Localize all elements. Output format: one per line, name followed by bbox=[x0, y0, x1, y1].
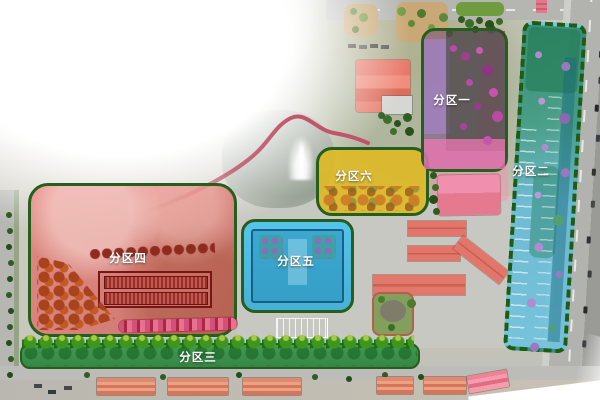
zone6-autumn-trees bbox=[321, 186, 424, 211]
residential-row-house bbox=[424, 377, 466, 394]
parked-cars-bottom-left bbox=[34, 384, 42, 388]
greenhouse-row bbox=[104, 292, 208, 305]
zone1-blossom-trees bbox=[450, 45, 457, 52]
street-trees-left bbox=[6, 212, 12, 218]
residential-row-house bbox=[243, 378, 301, 395]
greenhouse-row bbox=[104, 276, 208, 289]
zone2-label: 分区二 bbox=[512, 163, 550, 179]
street-trees-bottom bbox=[84, 372, 90, 378]
zone4-tree-row bbox=[89, 243, 215, 261]
zone4-greenhouse-building bbox=[98, 271, 212, 308]
residential-row-house bbox=[168, 378, 228, 395]
zone3-label: 分区三 bbox=[179, 349, 217, 365]
zone4-label: 分区四 bbox=[109, 250, 147, 266]
fountain-spray bbox=[288, 136, 314, 180]
zone1-label: 分区一 bbox=[433, 92, 471, 108]
site-plan-map: 分区一 分区二 分区三 分区四 分区五 分区六 bbox=[0, 0, 600, 400]
zone4-flower-shrub-row bbox=[119, 317, 237, 332]
residential-row-house bbox=[97, 378, 155, 395]
residential-row-house bbox=[377, 377, 413, 394]
zone1-pink-walk bbox=[424, 139, 505, 169]
zone5-label: 分区五 bbox=[277, 253, 315, 269]
zone3-tree-canopy-row bbox=[22, 334, 414, 350]
zone5-courtyard-green bbox=[312, 235, 336, 259]
zone6-label: 分区六 bbox=[335, 168, 373, 184]
